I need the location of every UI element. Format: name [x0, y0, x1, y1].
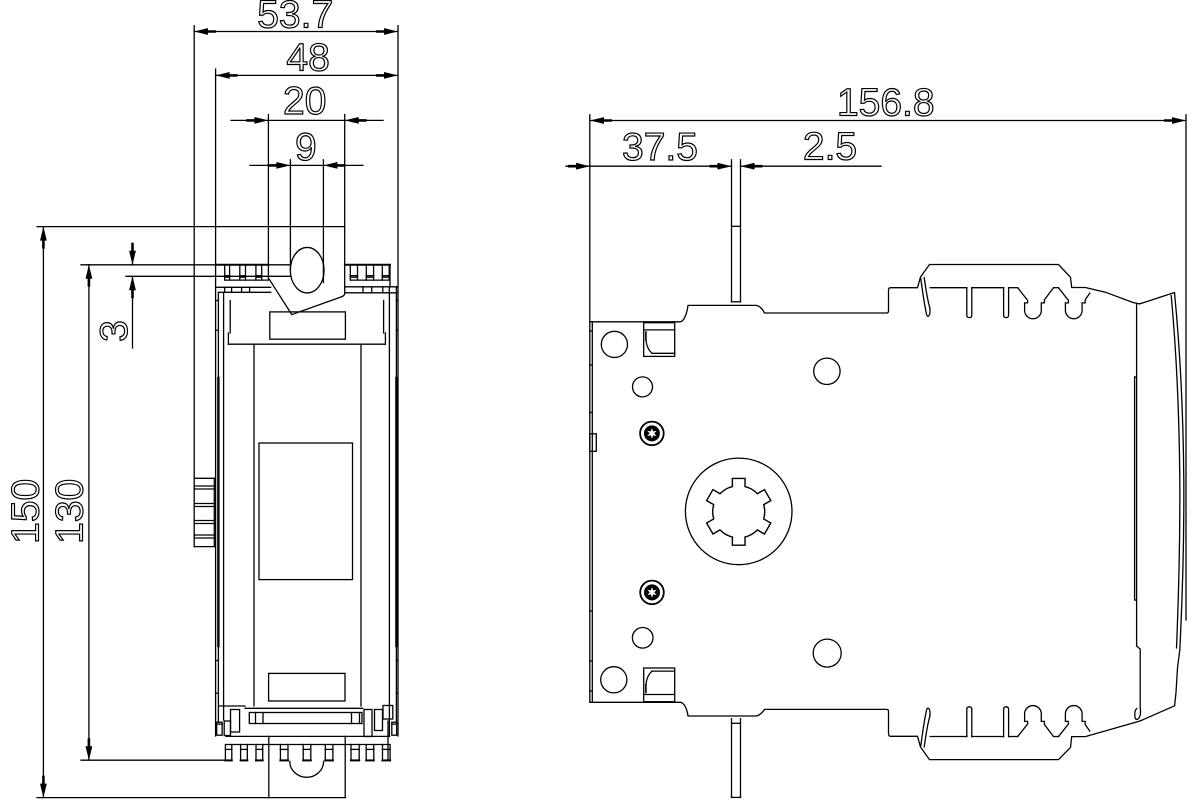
svg-text:20: 20 [283, 80, 326, 123]
svg-text:130: 130 [48, 479, 91, 544]
svg-text:53.7: 53.7 [257, 0, 333, 37]
svg-text:156.8: 156.8 [837, 82, 935, 125]
svg-text:150: 150 [5, 479, 48, 544]
svg-text:48: 48 [286, 36, 329, 79]
svg-text:2.5: 2.5 [803, 126, 857, 169]
svg-text:9: 9 [295, 126, 317, 169]
svg-text:37.5: 37.5 [622, 126, 698, 169]
svg-text:3: 3 [93, 320, 136, 342]
